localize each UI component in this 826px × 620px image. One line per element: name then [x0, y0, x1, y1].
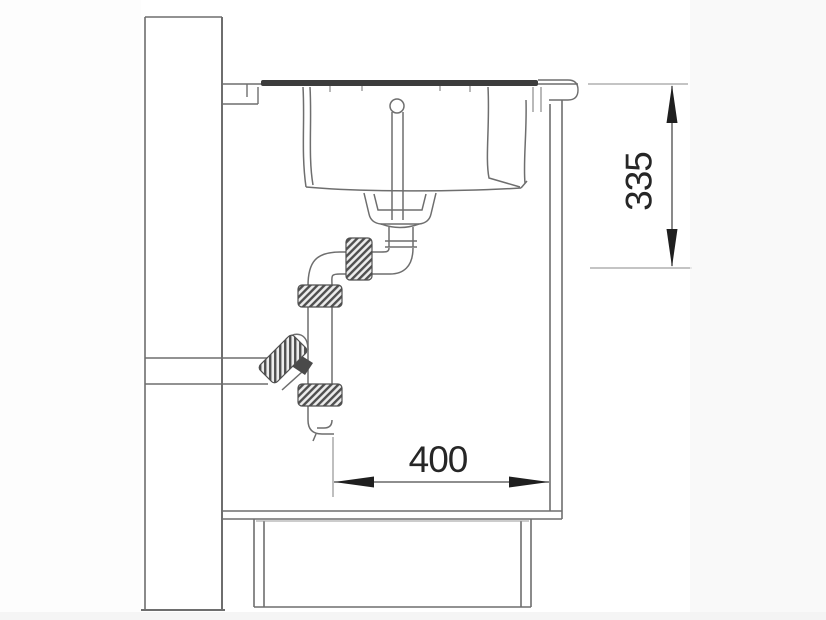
nut-upper — [298, 285, 342, 307]
dimension-label-335: 335 — [621, 146, 658, 218]
sink-rim — [261, 80, 538, 86]
technical-drawing: 400 335 — [0, 0, 826, 620]
sink-installation-diagram — [0, 0, 826, 620]
wall-panel — [140, 17, 225, 610]
rim-clamp-ticks — [330, 86, 541, 112]
compression-nuts — [258, 238, 372, 406]
trap-u-bend — [308, 406, 334, 434]
sink-bowl — [303, 87, 527, 191]
arrow-up — [667, 85, 678, 123]
nut-branch-45deg — [258, 334, 309, 385]
arrow-left — [334, 477, 374, 488]
nut-lower — [298, 384, 342, 406]
drain-knob — [390, 99, 404, 113]
arrow-right — [509, 477, 549, 488]
nut-tailpiece — [346, 238, 372, 280]
plinth — [254, 519, 531, 607]
drain-control-pipe — [390, 99, 404, 220]
countertop-lip — [538, 80, 578, 100]
dimension-label-400: 400 — [402, 441, 474, 478]
wall-drain-pipe — [145, 358, 268, 384]
drain-strainer — [364, 193, 436, 247]
arrow-down — [667, 229, 678, 267]
